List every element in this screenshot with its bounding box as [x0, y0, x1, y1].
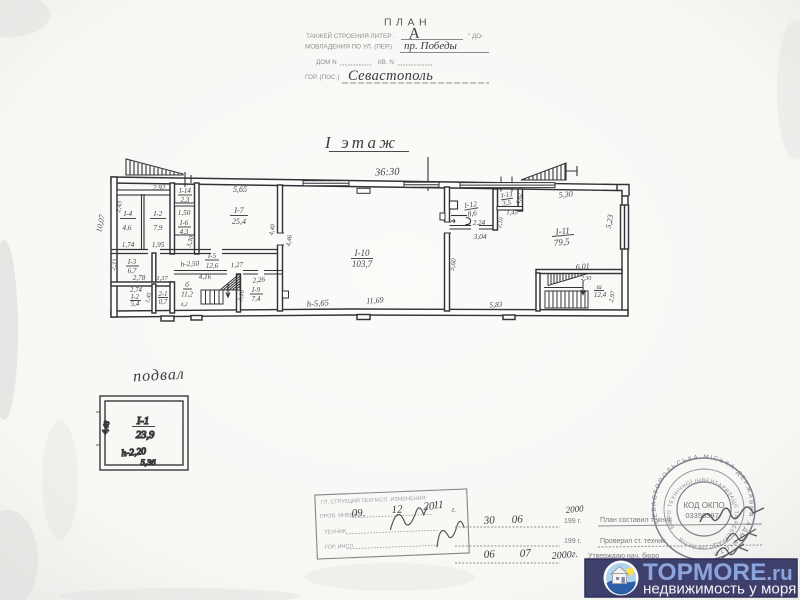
svg-text:1,37: 1,37 — [156, 275, 168, 282]
svg-text:І-1: І-1 — [136, 416, 149, 427]
svg-text:ш: ш — [596, 283, 602, 291]
svg-text:4,16: 4,16 — [199, 273, 212, 281]
svg-text:ГОР. (ПОС.): ГОР. (ПОС.) — [305, 74, 339, 81]
svg-text:2,92: 2,92 — [153, 184, 166, 192]
svg-text:б: б — [185, 280, 189, 289]
svg-text:2,78: 2,78 — [133, 274, 146, 282]
svg-text:7,4: 7,4 — [252, 295, 261, 303]
svg-text:2000: 2000 — [565, 503, 584, 515]
svg-text:11: 11 — [433, 499, 444, 511]
svg-text:ТЕХНИК: ТЕХНИК — [324, 529, 347, 536]
svg-text:06: 06 — [483, 548, 495, 561]
svg-text:07: 07 — [519, 547, 531, 560]
svg-text:І-14: І-14 — [178, 187, 191, 195]
svg-text:І-6: І-6 — [179, 219, 189, 227]
svg-text:2,3: 2,3 — [181, 196, 190, 204]
svg-text:КВ. N: КВ. N — [378, 59, 394, 66]
svg-text:І-2: І-2 — [153, 210, 163, 218]
svg-text:1,74: 1,74 — [122, 241, 135, 249]
svg-text:пр. Победы: пр. Победы — [404, 40, 458, 52]
svg-text:h-2,50: h-2,50 — [180, 259, 199, 268]
svg-text:І-4: І-4 — [123, 210, 133, 218]
svg-text:5,30: 5,30 — [558, 189, 573, 199]
svg-text:11,2: 11,2 — [181, 291, 193, 299]
svg-text:4,6: 4,6 — [123, 224, 132, 232]
svg-text:3,5: 3,5 — [501, 198, 512, 207]
svg-text:199 г.: 199 г. — [564, 518, 581, 525]
svg-text:7,9: 7,9 — [154, 224, 163, 232]
svg-text:5,83: 5,83 — [489, 300, 503, 310]
svg-text:" ДО-: " ДО- — [468, 33, 483, 40]
svg-text:4,2: 4,2 — [181, 301, 188, 308]
svg-text:5,65: 5,65 — [233, 185, 247, 194]
svg-text:4,3: 4,3 — [180, 228, 189, 236]
svg-text:Севастополь: Севастополь — [348, 68, 433, 84]
svg-text:11,69: 11,69 — [366, 295, 384, 305]
svg-text:79,5: 79,5 — [553, 236, 570, 248]
svg-text:г.: г. — [451, 505, 456, 513]
svg-text:І-10: І-10 — [354, 248, 370, 258]
svg-text:30: 30 — [482, 514, 495, 527]
svg-text:І-3: І-3 — [127, 258, 137, 266]
svg-text:1,45: 1,45 — [506, 210, 518, 217]
svg-text:МОВЛАДЕНИЯ ПО УЛ. (ПЕР.): МОВЛАДЕНИЯ ПО УЛ. (ПЕР.) — [305, 44, 392, 51]
svg-text:1,95: 1,95 — [152, 241, 165, 249]
svg-text:09.: 09. — [351, 507, 365, 520]
svg-text:3,04: 3,04 — [472, 232, 486, 241]
svg-text:199 г.: 199 г. — [564, 538, 581, 545]
svg-text:Проверил ст. техник: Проверил ст. техник — [600, 538, 666, 545]
svg-text:недвижимость у моря: недвижимость у моря — [643, 581, 796, 598]
svg-text:h-5,65: h-5,65 — [306, 297, 329, 309]
svg-text:06: 06 — [511, 513, 523, 526]
svg-text:5,36: 5,36 — [141, 457, 157, 467]
svg-text:2,74: 2,74 — [130, 287, 142, 294]
svg-text:2000г.: 2000г. — [551, 549, 578, 562]
svg-text:І-7: І-7 — [233, 206, 244, 215]
svg-text:103,7: 103,7 — [352, 259, 373, 269]
svg-text:І-2: І-2 — [130, 294, 140, 301]
svg-text:План составил техник: План составил техник — [600, 517, 673, 524]
svg-text:25,4: 25,4 — [232, 217, 246, 226]
svg-text:1,27: 1,27 — [230, 261, 244, 270]
svg-text:ТАКЖЕЙ СТРОЕНИЯ ЛИТЕР .: ТАКЖЕЙ СТРОЕНИЯ ЛИТЕР . — [306, 31, 395, 40]
svg-text:5,4: 5,4 — [131, 301, 140, 308]
svg-text:І этаж: І этаж — [324, 133, 398, 152]
svg-text:12,4: 12,4 — [594, 291, 607, 299]
svg-text:2,26: 2,26 — [252, 275, 266, 284]
svg-text:12: 12 — [391, 504, 403, 516]
svg-text:36:30: 36:30 — [374, 167, 401, 179]
svg-text:І-5: І-5 — [207, 252, 217, 260]
svg-text:12,6: 12,6 — [206, 262, 219, 270]
svg-text:23,9: 23,9 — [136, 430, 155, 441]
svg-text:0,7: 0,7 — [159, 299, 168, 306]
svg-text:2-1: 2-1 — [158, 291, 167, 298]
svg-text:ДОМ N: ДОМ N — [316, 59, 337, 66]
svg-text:2,30: 2,30 — [581, 276, 592, 282]
svg-text:2,24: 2,24 — [473, 219, 486, 227]
svg-text:І-9: І-9 — [251, 286, 261, 294]
svg-text:8,6: 8,6 — [467, 208, 478, 219]
svg-text:ГОР. ИНСП.: ГОР. ИНСП. — [325, 543, 356, 550]
svg-text:1,50: 1,50 — [178, 209, 191, 217]
svg-text:подвал: подвал — [133, 366, 186, 386]
svg-text:КОД ОКПО: КОД ОКПО — [683, 501, 724, 510]
svg-text:6,01: 6,01 — [575, 261, 590, 271]
